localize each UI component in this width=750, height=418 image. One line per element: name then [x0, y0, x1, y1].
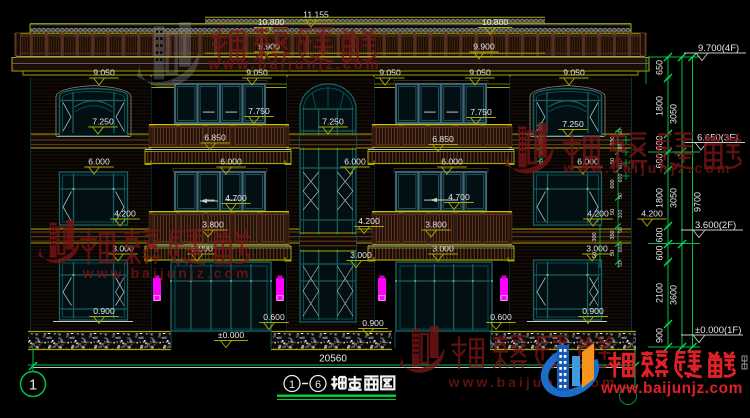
- svg-text:www.baijunjz.com: www.baijunjz.com: [600, 380, 743, 397]
- svg-text:20560: 20560: [319, 354, 347, 365]
- svg-text:±0.000: ±0.000: [218, 330, 244, 340]
- svg-text:9.050: 9.050: [563, 68, 585, 78]
- svg-text:www.baijunjz.com: www.baijunjz.com: [207, 57, 381, 73]
- svg-text:1: 1: [289, 379, 295, 391]
- svg-text:3.800: 3.800: [202, 220, 224, 230]
- svg-text:±0.000(1F): ±0.000(1F): [695, 325, 741, 336]
- svg-text:6.000: 6.000: [441, 157, 463, 167]
- svg-text:50: 50: [618, 129, 624, 135]
- svg-text:9.050: 9.050: [93, 68, 115, 78]
- svg-text:600: 600: [610, 179, 616, 188]
- svg-text:10.800: 10.800: [258, 17, 285, 27]
- svg-text:50: 50: [618, 261, 624, 267]
- svg-text:www.baijunjz.com: www.baijunjz.com: [82, 265, 252, 281]
- svg-text:600: 600: [618, 244, 624, 253]
- svg-text:6.000: 6.000: [220, 157, 242, 167]
- svg-text:3.800: 3.800: [425, 220, 447, 230]
- svg-text:6.000: 6.000: [88, 157, 110, 167]
- svg-text:3.000: 3.000: [350, 250, 372, 260]
- svg-text:3.600(2F): 3.600(2F): [695, 220, 736, 231]
- svg-text:9.050: 9.050: [469, 68, 491, 78]
- svg-text:2100: 2100: [655, 283, 665, 303]
- svg-text:6: 6: [315, 379, 321, 391]
- svg-text:9.050: 9.050: [379, 68, 401, 78]
- svg-text:11.155: 11.155: [303, 10, 329, 20]
- svg-text:0.900: 0.900: [362, 318, 384, 328]
- svg-text:9.900: 9.900: [473, 42, 495, 52]
- svg-text:4.200: 4.200: [114, 209, 136, 219]
- svg-text:0.600: 0.600: [490, 312, 512, 322]
- svg-text:50: 50: [618, 193, 624, 199]
- svg-text:6.000: 6.000: [344, 157, 366, 167]
- svg-text:50: 50: [592, 252, 598, 258]
- svg-text:300: 300: [618, 210, 624, 219]
- svg-text:600: 600: [655, 227, 665, 242]
- svg-text:1800: 1800: [655, 188, 665, 208]
- svg-text:0.900: 0.900: [582, 306, 604, 316]
- svg-text:50: 50: [610, 250, 616, 256]
- svg-text:3600: 3600: [669, 285, 679, 305]
- svg-text:6.850: 6.850: [432, 134, 454, 144]
- svg-text:7.750: 7.750: [470, 107, 492, 117]
- svg-text:7.250: 7.250: [92, 117, 114, 127]
- svg-text:7.250: 7.250: [562, 119, 584, 129]
- svg-text:www.baijunjz.com: www.baijunjz.com: [563, 160, 733, 176]
- svg-text:0.600: 0.600: [263, 312, 285, 322]
- svg-text:300: 300: [592, 232, 598, 241]
- svg-text:650: 650: [655, 60, 665, 75]
- svg-text:3.000: 3.000: [432, 244, 454, 254]
- svg-text:6.850: 6.850: [204, 133, 226, 143]
- svg-text:3050: 3050: [669, 188, 679, 208]
- svg-text:7.750: 7.750: [248, 106, 270, 116]
- svg-text:4.200: 4.200: [587, 209, 609, 219]
- svg-text:50: 50: [610, 209, 616, 215]
- svg-text:50: 50: [618, 227, 624, 233]
- svg-text:900: 900: [655, 328, 665, 343]
- svg-text:4.200: 4.200: [358, 216, 380, 226]
- svg-text:9700: 9700: [693, 192, 703, 212]
- svg-text:600: 600: [655, 245, 665, 260]
- svg-text:4.700: 4.700: [448, 192, 470, 202]
- svg-text:7.250: 7.250: [322, 117, 344, 127]
- svg-text:350: 350: [610, 230, 616, 239]
- svg-text:1800: 1800: [655, 96, 665, 116]
- svg-text:9.700(4F): 9.700(4F): [698, 43, 739, 54]
- svg-text:0.900: 0.900: [93, 306, 115, 316]
- svg-text:3050: 3050: [669, 104, 679, 124]
- svg-text:4.700: 4.700: [225, 193, 247, 203]
- svg-text:10.800: 10.800: [482, 17, 509, 27]
- svg-text:1: 1: [29, 377, 37, 394]
- svg-text:4.200: 4.200: [641, 209, 663, 219]
